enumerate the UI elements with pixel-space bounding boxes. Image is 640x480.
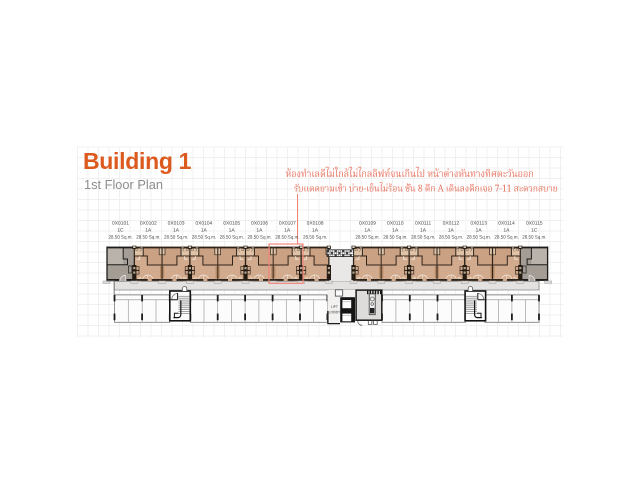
svg-text:Building 1: Building 1 bbox=[83, 148, 192, 174]
svg-text:1st Floor Plan: 1st Floor Plan bbox=[84, 177, 163, 192]
